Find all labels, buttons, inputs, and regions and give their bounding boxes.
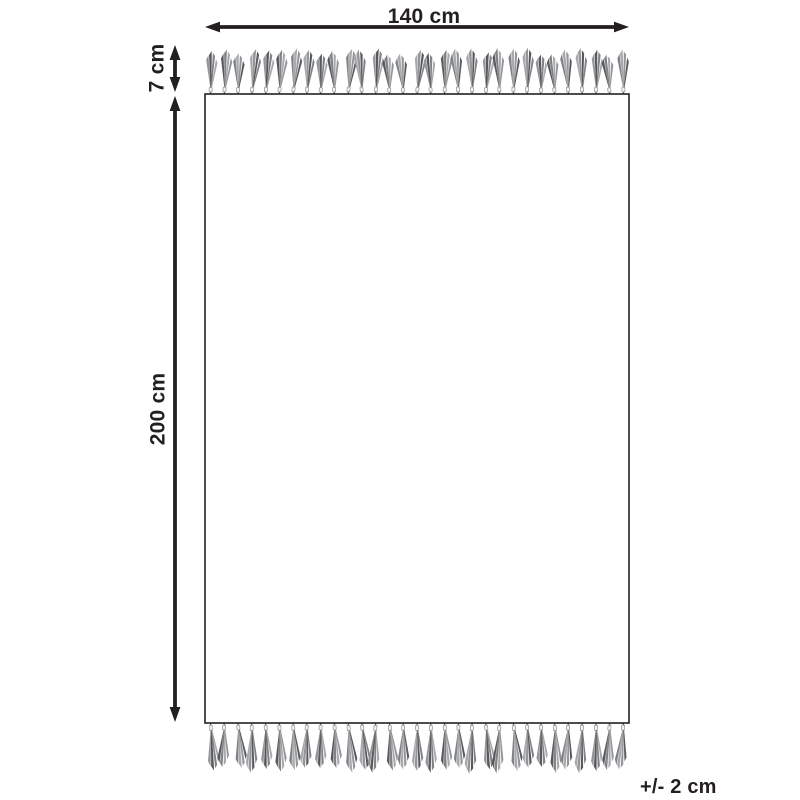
tassel — [288, 723, 301, 771]
height-dimension-label: 200 cm — [148, 373, 169, 445]
tassel-tie — [237, 88, 240, 92]
tassel — [591, 50, 604, 95]
tassel — [439, 723, 452, 770]
tassel-tie — [595, 87, 598, 92]
tassel-tie — [292, 725, 295, 730]
tassel-tie — [429, 725, 432, 730]
dimension-diagram: 140 cm 7 cm 200 cm +/- 2 cm — [0, 0, 800, 800]
tassel — [602, 723, 616, 771]
tassel-tie — [526, 725, 529, 730]
tassel-tie — [305, 87, 308, 92]
arrowhead — [170, 45, 181, 60]
tassel-tie — [250, 725, 253, 730]
tassel-tie — [374, 87, 377, 92]
tassel-tie — [470, 87, 473, 92]
tassel — [491, 723, 506, 774]
tassel — [205, 51, 217, 94]
tassel-tie — [608, 88, 611, 92]
tassel-tie — [498, 87, 501, 92]
tassel-tie — [553, 88, 556, 93]
tassel-tie — [580, 87, 583, 92]
arrowhead — [205, 22, 220, 33]
tassel — [492, 48, 506, 95]
tassel — [300, 723, 314, 769]
tassel-tie — [333, 87, 336, 92]
arrowhead — [170, 96, 181, 111]
tassel — [412, 49, 427, 94]
tassel — [575, 48, 588, 94]
tassel — [536, 54, 547, 94]
tassel-tie — [484, 88, 487, 93]
tassel — [398, 723, 410, 770]
tassel-tie — [360, 87, 363, 92]
arrowhead — [170, 707, 181, 722]
tassel-tie — [566, 87, 569, 92]
tassel — [425, 723, 437, 773]
tassel-tie — [608, 725, 611, 730]
tassel-tie — [388, 88, 391, 92]
tassel — [260, 50, 275, 95]
tassel — [508, 722, 523, 771]
tassel-tie — [278, 87, 281, 92]
tassel-tie — [251, 87, 254, 92]
tassel — [233, 723, 248, 769]
tassel-tie — [456, 87, 459, 92]
top-fringe — [205, 47, 629, 94]
rug-diagram-graphic — [0, 0, 800, 800]
tassel-tie — [292, 87, 295, 92]
tassel — [550, 723, 563, 773]
tassel — [219, 49, 233, 94]
tassel — [423, 52, 437, 94]
tassel-tie — [622, 87, 625, 92]
tassel — [508, 48, 520, 94]
tassel — [371, 48, 385, 94]
tassel-tie — [237, 725, 240, 730]
tassel-tie — [264, 87, 267, 92]
tassel — [560, 723, 575, 771]
tassel-tie — [374, 725, 377, 731]
tassel — [205, 723, 220, 771]
tassel-tie — [484, 725, 487, 730]
tassel-tie — [402, 725, 405, 730]
tassel — [217, 723, 230, 768]
tassel — [522, 47, 534, 94]
arrowhead — [170, 77, 181, 92]
fringe-dimension-arrow — [170, 45, 181, 92]
tassel-tie — [553, 725, 556, 730]
tassel — [302, 50, 315, 95]
tassel — [522, 723, 534, 768]
tassel-tie — [222, 725, 225, 730]
tassel — [367, 723, 382, 774]
tassel — [233, 53, 245, 94]
rug-outline — [205, 94, 629, 723]
tassel-tie — [319, 725, 322, 730]
tassel — [617, 49, 630, 94]
tassel-tie — [278, 725, 281, 730]
tassel-tie — [333, 725, 336, 730]
tassel — [559, 49, 574, 95]
tassel-tie — [470, 725, 473, 731]
tassel-tie — [566, 725, 569, 730]
width-dimension-label: 140 cm — [388, 6, 460, 27]
tassel-tie — [498, 725, 501, 731]
tassel — [274, 723, 287, 772]
tassel-tie — [512, 725, 515, 730]
tassel-tie — [209, 725, 212, 730]
tassel — [439, 50, 452, 95]
tassel-tie — [223, 87, 226, 92]
tassel-tie — [526, 87, 529, 92]
tassel — [591, 723, 603, 771]
tassel — [247, 49, 263, 95]
tassel — [327, 51, 341, 95]
tassel — [601, 54, 616, 94]
tassel — [315, 723, 327, 768]
tassel — [329, 723, 342, 769]
tassel-tie — [457, 725, 460, 730]
tassel-tie — [539, 88, 542, 92]
tassel — [384, 723, 399, 771]
tassel — [614, 723, 630, 771]
tassel — [574, 723, 588, 774]
tassel-tie — [539, 725, 542, 730]
tassel — [546, 54, 561, 95]
tassel — [343, 723, 358, 774]
tassel-tie — [319, 88, 322, 92]
tassel — [395, 53, 410, 94]
tassel — [464, 723, 478, 775]
tassel-tie — [388, 725, 391, 730]
tassel-tie — [429, 88, 432, 93]
tassel-tie — [416, 87, 419, 92]
fringe-dimension-label: 7 cm — [147, 44, 168, 93]
tassel — [412, 723, 423, 771]
tassel — [450, 48, 465, 94]
tassel-tie — [512, 87, 515, 92]
tassel — [382, 54, 396, 94]
tassel-tie — [595, 725, 598, 730]
tassel-tie — [264, 725, 267, 730]
tassel — [353, 49, 368, 94]
tassel-tie — [443, 87, 446, 92]
tassel-tie — [580, 725, 583, 731]
tassel-tie — [347, 87, 350, 92]
tassel-tie — [347, 725, 350, 731]
tassel — [274, 49, 288, 94]
tassel — [246, 723, 258, 773]
tassel-tie — [209, 87, 212, 92]
tassel — [466, 48, 478, 94]
tassel-tie — [361, 725, 364, 730]
tassel — [536, 723, 548, 768]
tassel-tie — [401, 88, 404, 93]
bottom-fringe — [205, 722, 629, 774]
tolerance-label: +/- 2 cm — [640, 777, 717, 797]
tassel — [288, 48, 303, 95]
height-dimension-arrow — [170, 96, 181, 722]
tassel — [260, 723, 272, 769]
tassel-tie — [443, 725, 446, 730]
tassel-tie — [416, 725, 419, 730]
tassel — [453, 723, 465, 768]
tassel-tie — [621, 725, 624, 730]
tassel-tie — [305, 725, 308, 730]
arrowhead — [614, 22, 629, 33]
tassel — [315, 53, 328, 94]
